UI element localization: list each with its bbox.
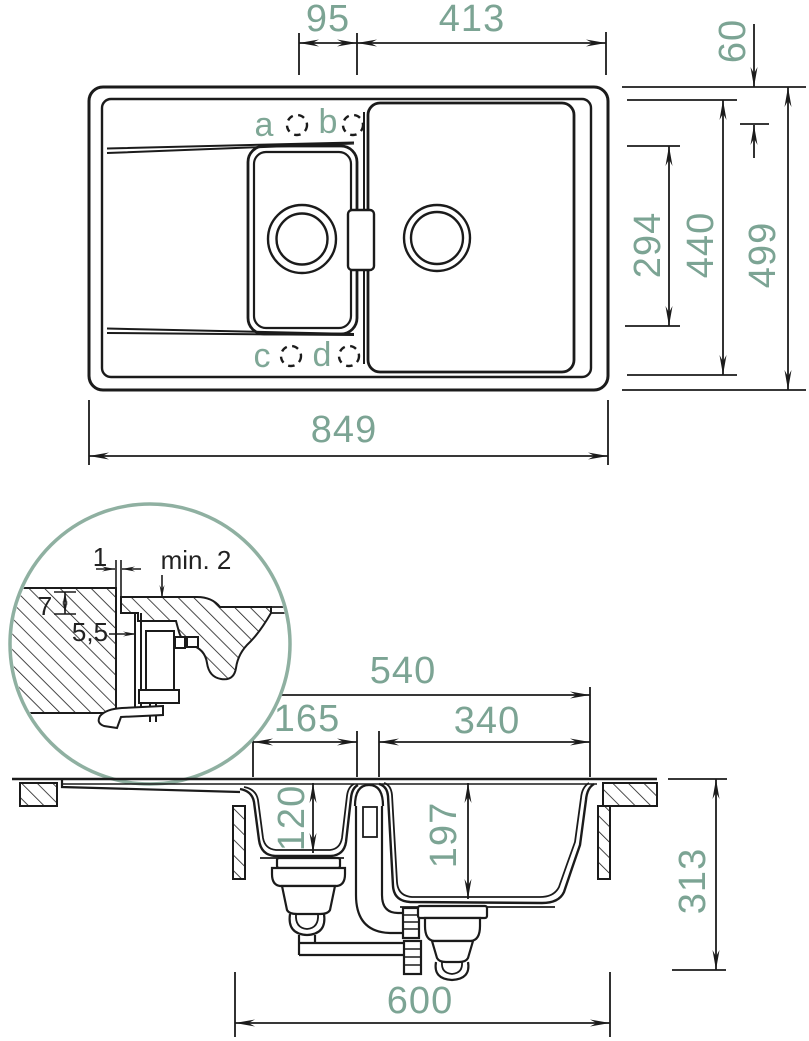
tap-hole-b-icon <box>343 115 363 135</box>
dim-rim-height: 7 <box>38 591 52 621</box>
dim-95: 95 <box>299 0 357 75</box>
dim-197: 197 <box>423 783 468 899</box>
large-bowl-trap <box>400 906 555 980</box>
hole-label-d: d <box>313 336 332 374</box>
countertop-hatch-left <box>20 783 57 806</box>
dim-bowl-to-edge: 413 <box>439 0 505 40</box>
dim-bowl-span: 540 <box>370 650 436 692</box>
countertop-hatch-right <box>603 783 657 806</box>
section-dimensions-upper: 540 165 340 <box>253 650 590 777</box>
dim-overhang: min. 2 <box>161 545 232 575</box>
hole-label-c: c <box>254 337 271 375</box>
dim-bowl-span-depth: 440 <box>680 212 722 278</box>
drain-pipe-horizontal <box>299 935 404 955</box>
dim-849: 849 <box>89 400 608 465</box>
tap-hole-a-icon <box>287 115 307 135</box>
dim-120: 120 <box>271 783 313 853</box>
dim-294: 294 <box>625 146 680 326</box>
small-bowl-drain <box>268 205 336 273</box>
drawing-canvas: a b c d 95 413 60 294 <box>0 0 809 1041</box>
dim-large-bowl-width: 340 <box>454 700 520 742</box>
bowl-connector <box>348 210 374 270</box>
dim-340: 340 <box>379 700 590 777</box>
section-view: 120 197 313 600 <box>12 779 727 1037</box>
cabinet-wall-right <box>598 806 610 879</box>
sink-dimension-drawing: a b c d 95 413 60 294 <box>0 0 809 1041</box>
top-view: a b c d 95 413 60 294 <box>89 0 806 465</box>
dim-413: 413 <box>357 0 606 75</box>
dim-reveal: 5,5 <box>72 617 108 647</box>
overflow-pipe <box>355 785 404 933</box>
dim-small-bowl-width: 165 <box>274 698 340 740</box>
dim-cabinet-width: 600 <box>387 980 453 1022</box>
hole-label-b: b <box>319 103 338 141</box>
hole-label-a: a <box>255 106 274 144</box>
dim-small-bowl-length: 294 <box>627 212 669 278</box>
mounting-detail: 1 min. 2 7 5,5 <box>5 504 290 784</box>
large-bowl-drain <box>404 205 470 271</box>
dim-rim-offset: 60 <box>712 19 754 63</box>
dim-313: 313 <box>668 779 727 970</box>
dim-total-length: 849 <box>311 409 377 451</box>
dim-total-depth: 499 <box>742 222 784 288</box>
tap-hole-c-icon <box>281 346 301 366</box>
dim-small-bowl-depth: 120 <box>271 785 313 851</box>
dim-large-bowl-depth: 197 <box>423 802 465 868</box>
large-bowl-section <box>379 784 594 903</box>
dim-600: 600 <box>235 972 610 1037</box>
small-bowl-top <box>248 146 357 334</box>
dim-gap: 1 <box>93 542 107 572</box>
sink-outline-top <box>89 87 608 390</box>
detail-countertop-hatch <box>5 588 116 713</box>
dim-hole-spacing: 95 <box>306 0 350 40</box>
dim-60: 60 <box>622 19 806 158</box>
cabinet-wall-left <box>233 806 245 879</box>
tap-hole-d-icon <box>339 346 359 366</box>
dim-total-height: 313 <box>672 848 714 914</box>
